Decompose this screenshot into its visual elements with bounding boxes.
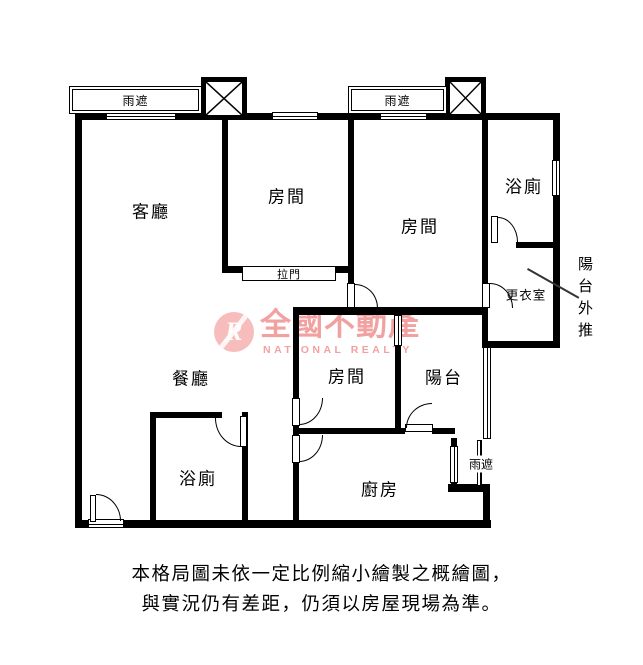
balcony-extension-label: 陽台外推 [574, 256, 595, 344]
wall [293, 462, 299, 528]
disclaimer-line: 與實況仍有差距，仍須以房屋現場為準。 [0, 590, 643, 620]
window [552, 160, 560, 196]
floor-plan-canvas: R 全國不動產 NATIONAL REALTY [0, 0, 643, 665]
canopy-label-bottom: 雨遮 [468, 456, 494, 473]
wall [75, 520, 491, 528]
window [483, 347, 491, 439]
door-swing-arc [355, 284, 378, 308]
canopy-label: 雨遮 [120, 92, 150, 109]
window [272, 112, 318, 120]
room-label-closet: 更衣室 [506, 285, 547, 304]
watermark-brand-en-text: NATIONAL REALTY [263, 344, 413, 356]
room-label-bath1: 浴廁 [505, 173, 543, 198]
wall [293, 307, 488, 315]
logo-letter: R [225, 317, 242, 347]
wall [222, 118, 228, 270]
room-label-room3: 房間 [328, 363, 366, 388]
wall [348, 118, 354, 283]
wall [482, 341, 560, 348]
room-label-living: 客廳 [132, 198, 170, 223]
wall [483, 484, 490, 528]
door-swing-arc [96, 494, 121, 521]
wall [516, 242, 560, 248]
column-marker [445, 77, 486, 119]
door-swing-arc [215, 418, 241, 447]
wall [432, 428, 455, 434]
brand-logo-icon: R [214, 312, 254, 352]
wall [553, 113, 560, 348]
door-leaf [240, 416, 247, 447]
door-swing-arc [299, 398, 323, 425]
wall [293, 307, 299, 398]
room-label-bath2: 浴廁 [179, 465, 217, 490]
sliding-door: 拉門 [242, 266, 336, 281]
column-marker [201, 77, 247, 120]
x-cross-icon [450, 82, 481, 114]
room-label-room1: 房間 [268, 183, 306, 208]
wall [150, 412, 156, 524]
door-leaf [347, 283, 355, 308]
disclaimer: 本格局圖未依一定比例縮小繪製之概繪圖， 與實況仍有差距，仍須以房屋現場為準。 [0, 560, 643, 620]
wall [395, 345, 401, 430]
door-swing-arc [299, 435, 323, 462]
canopy-label: 雨遮 [382, 92, 412, 109]
door-swing-arc [498, 217, 518, 242]
wall [150, 412, 222, 418]
wall [75, 113, 82, 527]
door-leaf [491, 216, 498, 243]
wall [293, 428, 405, 434]
wall [482, 113, 488, 283]
window [450, 446, 458, 483]
canopy-box: 雨遮 [348, 86, 447, 114]
room-label-kitchen: 廚房 [361, 476, 399, 501]
canopy-box: 雨遮 [69, 86, 202, 114]
x-cross-icon [206, 82, 242, 115]
window [394, 315, 402, 346]
room-label-room2: 房間 [401, 213, 439, 238]
sliding-door-label: 拉門 [277, 266, 301, 282]
room-label-dining: 餐廳 [172, 365, 210, 390]
door-swing-arc [406, 403, 432, 428]
door-leaf [482, 283, 490, 308]
room-label-balcony: 陽台 [425, 364, 463, 389]
disclaimer-line: 本格局圖未依一定比例縮小繪製之概繪圖， [0, 560, 643, 590]
